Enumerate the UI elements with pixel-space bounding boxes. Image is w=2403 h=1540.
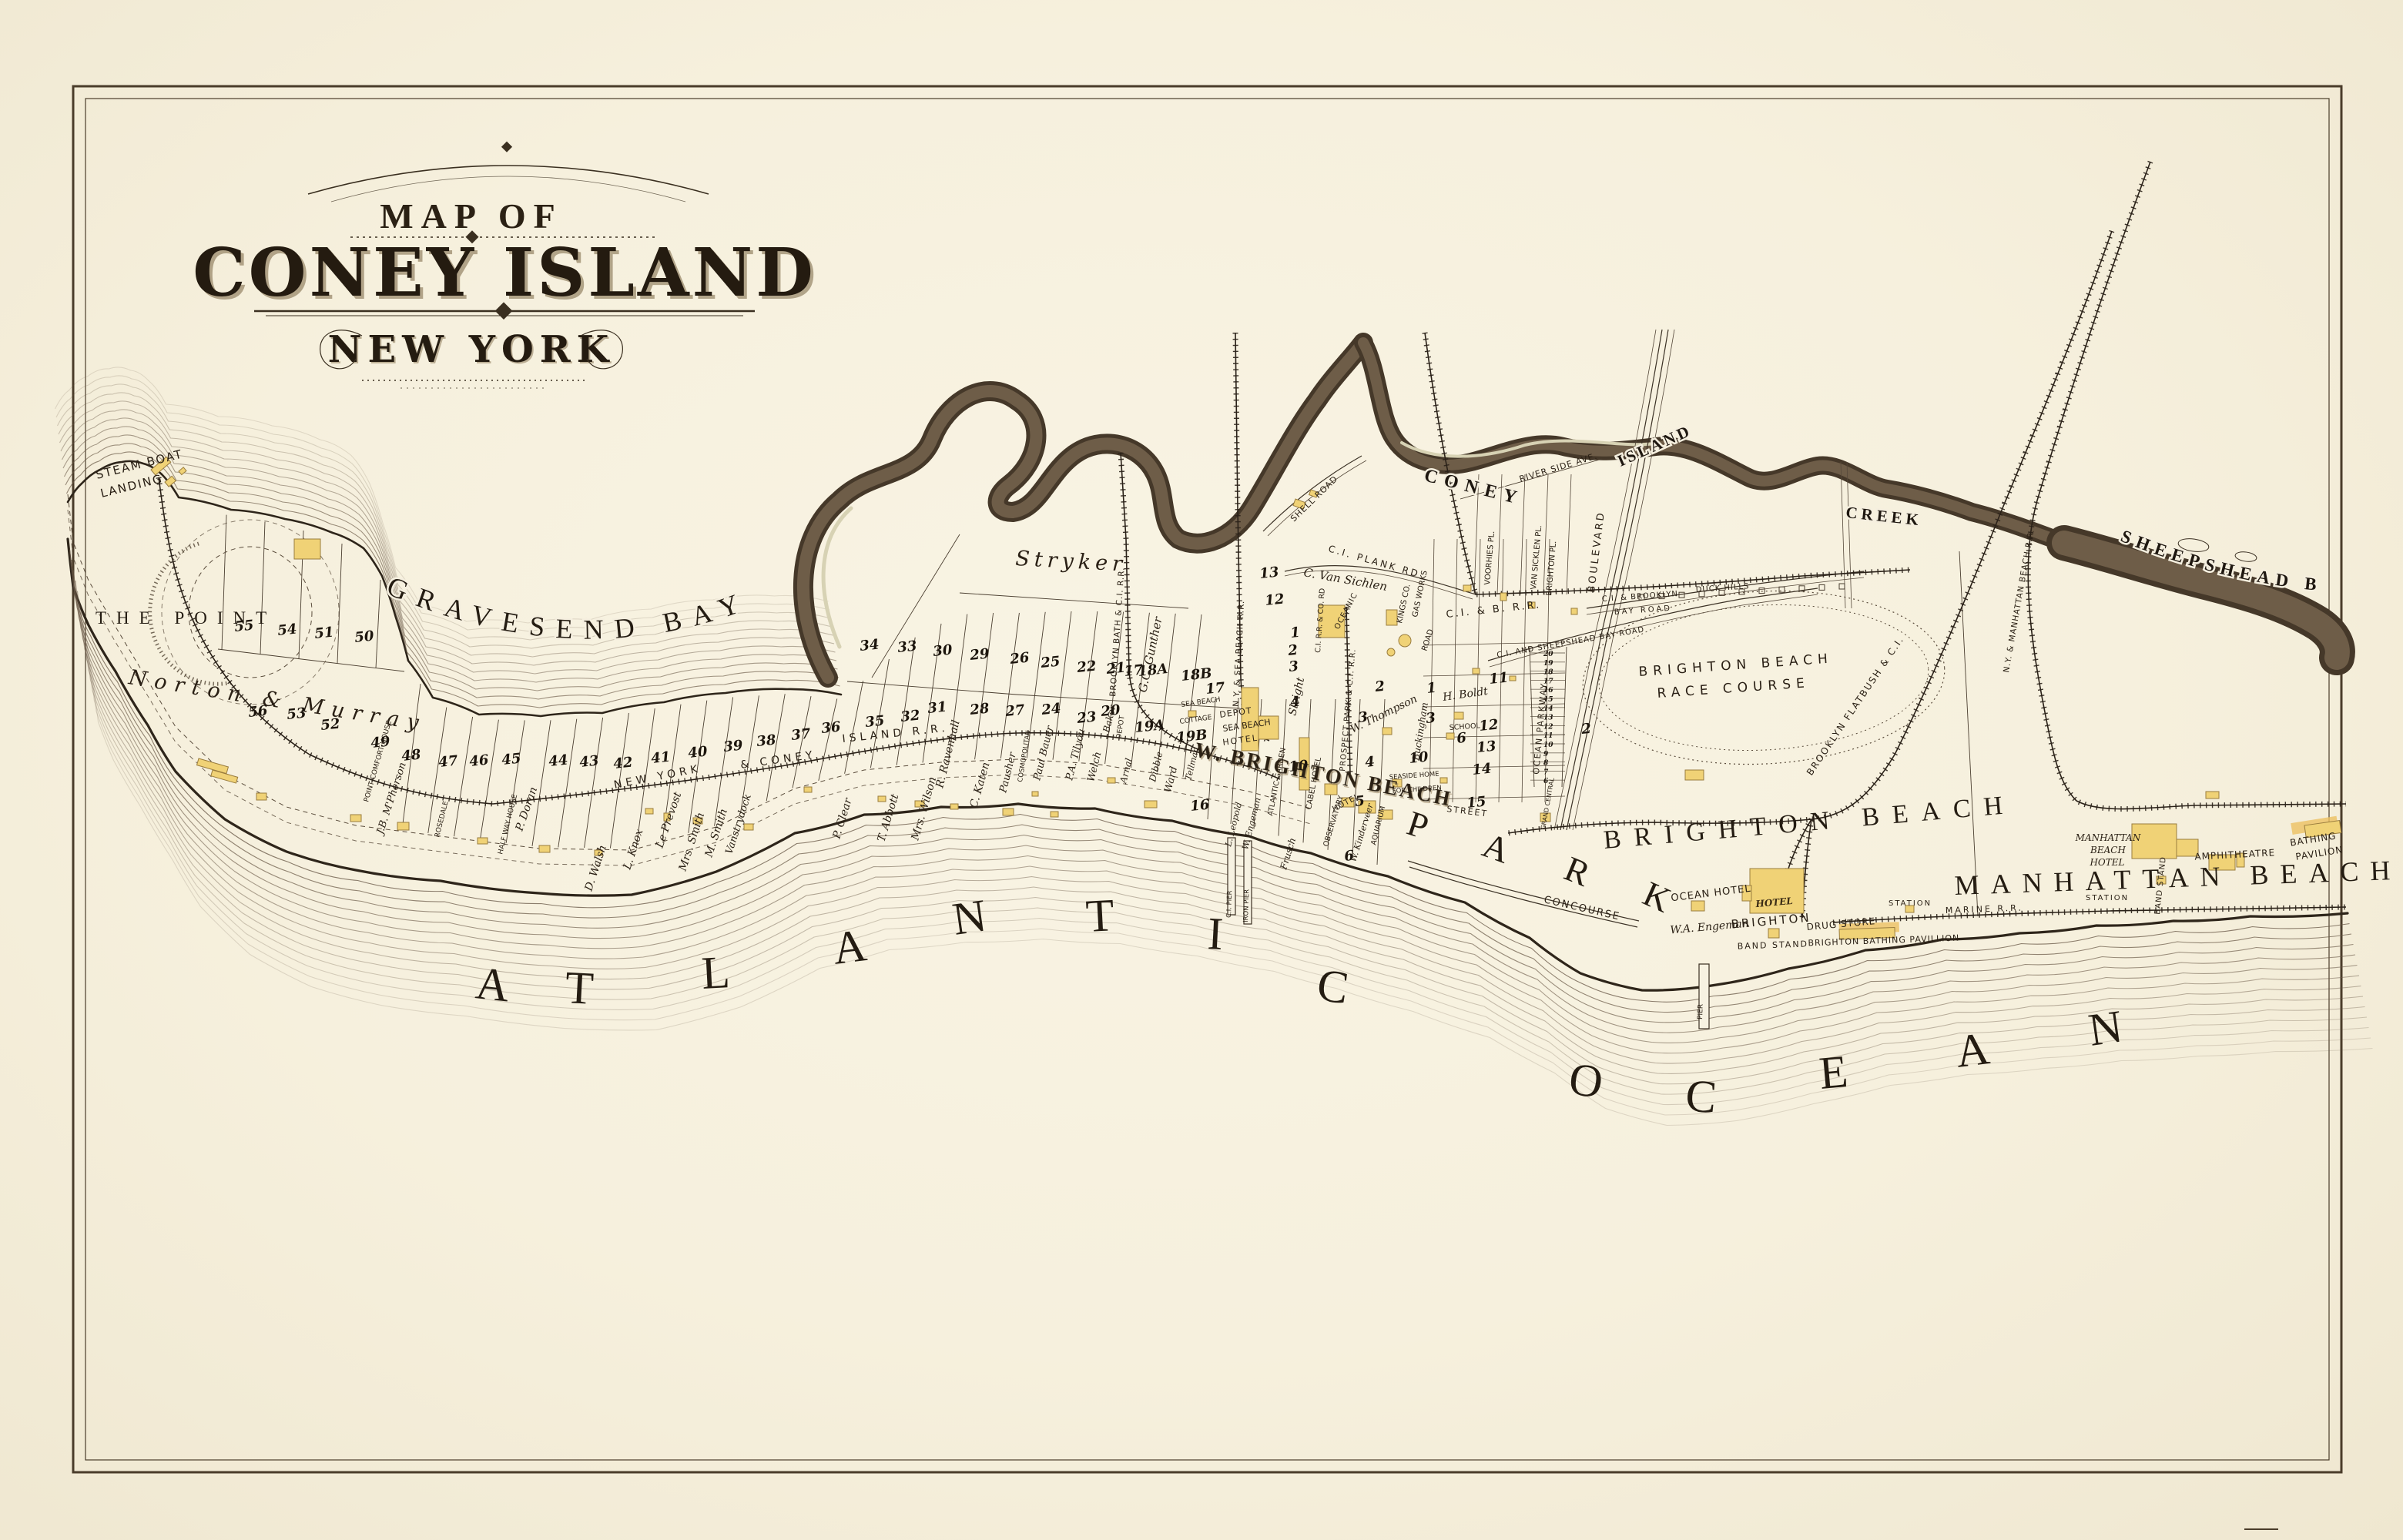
lot-column-number: 12 [1543,723,1553,731]
boulevard-label: BOULEVARD [1586,511,1607,594]
gunther-label: G.C. Gunther [1135,615,1165,694]
building [165,476,176,487]
lot-number-40: 40 [687,743,709,762]
riverside-ave-label: RIVER SIDE AVE. [1518,451,1599,484]
lot-number-28: 28 [968,700,990,718]
band-stand-b-label: BAND STAND [1738,939,1809,951]
bathing-pavillion-label: BRIGHTON BATHING PAVILLION [1808,933,1959,949]
lot-number-49: 49 [370,733,391,752]
lot-number-3: 3 [1288,658,1299,675]
building [804,787,812,792]
lot-number-45: 45 [501,750,521,768]
ci-pier-label: C.I. PIER [1225,890,1234,918]
voorhies-pl-label: VOORHIES PL. [1483,531,1496,585]
hotel-brighton-label-2: BRIGHTON [1731,911,1811,932]
coney-creek-label: CONEY [1423,466,1526,510]
lot-number-56: 56 [247,702,269,721]
lot-number-36: 36 [820,718,842,737]
lot-number-48: 48 [400,746,422,765]
park-letter-p: P [1403,803,1433,846]
katen-label: C. Katen [967,761,992,809]
shell-road-label: SHELL ROAD [1289,474,1340,524]
lot-number-31: 31 [927,698,947,717]
building [950,804,958,809]
lot-number-33: 33 [897,638,917,656]
station-label-2: STATION [2086,894,2129,902]
building [744,824,753,830]
boldt-label: H. Boldt [1441,685,1489,704]
coney-island-creek [803,343,2338,678]
lot-number-55: 55 [233,617,254,635]
park-letter-r: R [1559,849,1596,894]
atlantic-letter-c: C [1314,959,1352,1014]
ci-brooklyn-label: C.I. & BROOKLYN [1601,590,1678,604]
ci-b-rr-label: C.I. & B. R.R. [1446,599,1542,621]
lot-number-30: 30 [932,641,953,660]
ocean-letter-a: A [1953,1023,1992,1077]
ocean-hotel-label: OCEAN HOTEL [1671,883,1752,905]
lot-number-39: 39 [722,737,744,755]
van-sichlen-label: C. Van Sichlen [1302,565,1388,594]
lot-number-13: 13 [1258,564,1279,582]
building [1454,712,1463,719]
lot-column-number: 15 [1543,696,1553,704]
building [2206,792,2219,798]
pier-b-label: PIER [1697,1004,1705,1019]
atlantic-letter-n: N [950,889,990,944]
lot-number-38: 38 [756,731,777,750]
iron-pier-label: IRON PIER [1242,889,1252,922]
building [1571,608,1577,614]
building [1463,585,1471,591]
building [1446,733,1454,739]
brighton-beach-label: BRIGHTON BEACH [1602,790,2016,855]
van-sicklen-pl-label: VAN SICKLEN PL. [1530,525,1543,591]
atlantic-letter-l: L [700,946,731,999]
stryker-label: Stryker [1015,547,1128,577]
ny-manhattan-rr-label: N.Y. & MANHATTAN BEACH R.R. [2002,528,2036,673]
lot-column-number: 19 [1543,660,1553,668]
manhattan-beach-label: MANHATTAN BEACH [1954,855,2402,901]
creek-label: CREEK [1845,503,1923,529]
lot-number-2: 2 [1580,721,1592,738]
lot-column-number: 18 [1543,669,1553,677]
building [1500,593,1506,601]
ocean-letter-e: E [1817,1046,1849,1099]
rosedale-label: ROSEDALE [434,800,450,839]
lot-number-1: 1 [1289,624,1301,641]
duck-hills-house [1779,587,1785,592]
lot-number-29: 29 [968,645,990,664]
duck-hills-house [1819,584,1825,590]
building [1440,778,1447,783]
building [1108,778,1115,783]
lot-number-23: 23 [1075,708,1097,727]
lot-number-5: 5 [1354,793,1366,810]
lot-number-12: 12 [1478,716,1499,735]
building [478,838,488,844]
building [1685,770,1704,780]
lot-number-35: 35 [864,712,885,731]
lot-number-34: 34 [859,636,880,654]
lot-number-17: 17 [1123,661,1145,680]
lot-number-47: 47 [437,752,459,771]
lot-number-1: 1 [1426,680,1437,697]
atlantic-letter-i: I [1206,908,1224,959]
lot-number-4: 4 [1364,754,1376,771]
lot-column-number: 7 [1543,768,1549,776]
lot-number-27: 27 [1004,701,1026,720]
lot-number-2: 2 [1286,642,1299,659]
lot-number-46: 46 [468,752,490,770]
building [1382,728,1392,735]
sea-beach-cottage-label-2: COTTAGE [1179,714,1212,726]
arnal-label: Arnal [1118,757,1134,785]
mb-hotel-label-2: BEACH [2090,845,2126,855]
norton-murray-label: Norton & Murray [126,665,428,736]
lot-number-3: 3 [1425,710,1436,727]
lot-number-41: 41 [650,748,671,767]
lot-number-32: 32 [900,707,920,725]
sheepshead-bay-road-label: C.I. AND SHEEPSHEAD BAY ROAD [1496,625,1645,660]
lot-column-number: 10 [1543,742,1553,749]
building [1768,929,1779,938]
lot-column-number: 6 [1543,778,1549,785]
building [397,822,409,830]
lot-number-15: 15 [1466,793,1486,812]
ny-coney-rr-label-3: ISLAND R.R. [842,722,950,745]
lot-column-number: 13 [1543,715,1553,722]
lot-number-51: 51 [313,624,334,642]
atlantic-letter-t1: T [564,962,595,1014]
lot-number-52: 52 [320,715,340,734]
lot-number-20: 20 [1099,701,1121,720]
lot-number-14: 14 [1471,760,1492,778]
lot-column-number: 11 [1543,732,1553,740]
lot-number-37: 37 [790,725,812,744]
building [1473,668,1480,674]
dibble-label: Dibble [1147,751,1165,784]
building [1032,792,1038,796]
lot-number-42: 42 [612,754,633,772]
race-course-label-2: RACE COURSE [1657,675,1810,701]
lot-number-11: 11 [1488,669,1509,688]
kings-co-label: KINGS CO. [1396,584,1413,624]
lot-number-17: 17 [1205,679,1226,698]
station-label-1: STATION [1889,899,1932,908]
tilyou-label: P.A. Tilyou [1064,728,1088,782]
lot-column-number: 16 [1543,687,1553,695]
building [1051,812,1058,817]
ward-label: Ward [1162,765,1180,794]
coney-island-map: MAP OFCONEY ISLANDNEW YORKCONEYISLANDCRE… [0,0,2403,1540]
atlantic-letter-a1: A [474,957,512,1011]
lot-column-number: 9 [1543,751,1549,758]
building [1510,676,1516,681]
lot-number-12: 12 [1264,591,1285,609]
lot-number-10: 10 [1288,757,1309,775]
ocean-letter-o: O [1566,1053,1606,1108]
building [179,467,186,475]
building [1003,808,1014,815]
lot-number-25: 25 [1039,653,1061,671]
cosmopolitan-label: COSMOPOLITAN [1017,730,1032,783]
lot-number-4: 4 [1289,694,1301,711]
welch-label: Welch [1085,751,1104,783]
gas-tank [1399,634,1411,647]
lot-number-6: 6 [1456,730,1467,747]
lot-number-43: 43 [578,752,599,771]
building [1145,801,1157,808]
lot-number-10: 10 [1408,748,1429,767]
gravesend-bay-label: GRAVESEND BAY [383,571,754,645]
lot-column-number: 14 [1543,705,1553,713]
lot-number-54: 54 [276,621,297,639]
walsh-label: D. Walsh [582,843,609,893]
road-label: ROAD [1420,628,1436,651]
lot-number-50: 50 [354,628,375,646]
lot-number-53: 53 [286,705,307,723]
brighton-pl-label: BRIGHTON PL. [1545,541,1558,596]
lot-number-3: 3 [1357,709,1369,726]
building [1691,901,1704,911]
title-new-york: NEW YORK [328,328,615,371]
le-prevost-label: Le Prevost [653,790,684,850]
ocean-letter-c: C [1684,1070,1719,1123]
prospect-park-rr-label: PROSPECT PARK & C.I. R.R. [1339,648,1358,772]
title-coney-island: CONEY ISLAND [193,234,816,312]
lot-number-24: 24 [1040,700,1061,718]
duck-hills-house [1839,584,1845,589]
park-letter-a: A [1478,825,1516,870]
lot-number-19A: 19A [1134,717,1165,736]
lot-number-19B: 19B [1175,727,1208,746]
atlantic-letter-a2: A [830,919,870,974]
ocean-letter-n: N [2086,1000,2126,1055]
lot-number-2: 2 [1373,678,1386,695]
lot-number-44: 44 [548,752,568,770]
duck-hills-house [1759,588,1765,594]
lot-column-number: 20 [1543,651,1553,658]
building [256,793,266,800]
ny-coney-rr-label-2: & CONEY [739,748,816,772]
depot-v-label: DEPOT [1115,715,1127,739]
building [539,845,550,852]
lot-number-22: 22 [1075,658,1097,676]
concourse-label: CONCOURSE [1543,894,1621,922]
building [294,539,320,559]
lot-number-26: 26 [1008,649,1031,668]
leopold-label: L. Leopold [1223,801,1244,848]
atlantic-letter-t2: T [1084,889,1115,942]
building [878,796,886,802]
brooklyn-bath-rr-label: BROOKLYN BATH & C.I. R.R. [1108,567,1127,697]
gas-tank [1387,648,1395,656]
mrs-smith-label: Mrs. Smith [676,811,707,873]
lot-number-13: 13 [1476,738,1496,756]
lot-column-number: 8 [1543,760,1549,768]
lot-column-number: 17 [1543,678,1553,685]
building [645,808,653,814]
doran-label: P. Doran [513,785,540,833]
mb-hotel-label-1: MANHATTAN [2075,832,2141,843]
mb-hotel-label-3: HOTEL [2089,857,2124,868]
building [350,815,361,822]
frusch-label: Frusch [1278,836,1298,872]
title-map-of: MAP OF [380,196,563,236]
lot-number-16: 16 [1189,796,1211,815]
